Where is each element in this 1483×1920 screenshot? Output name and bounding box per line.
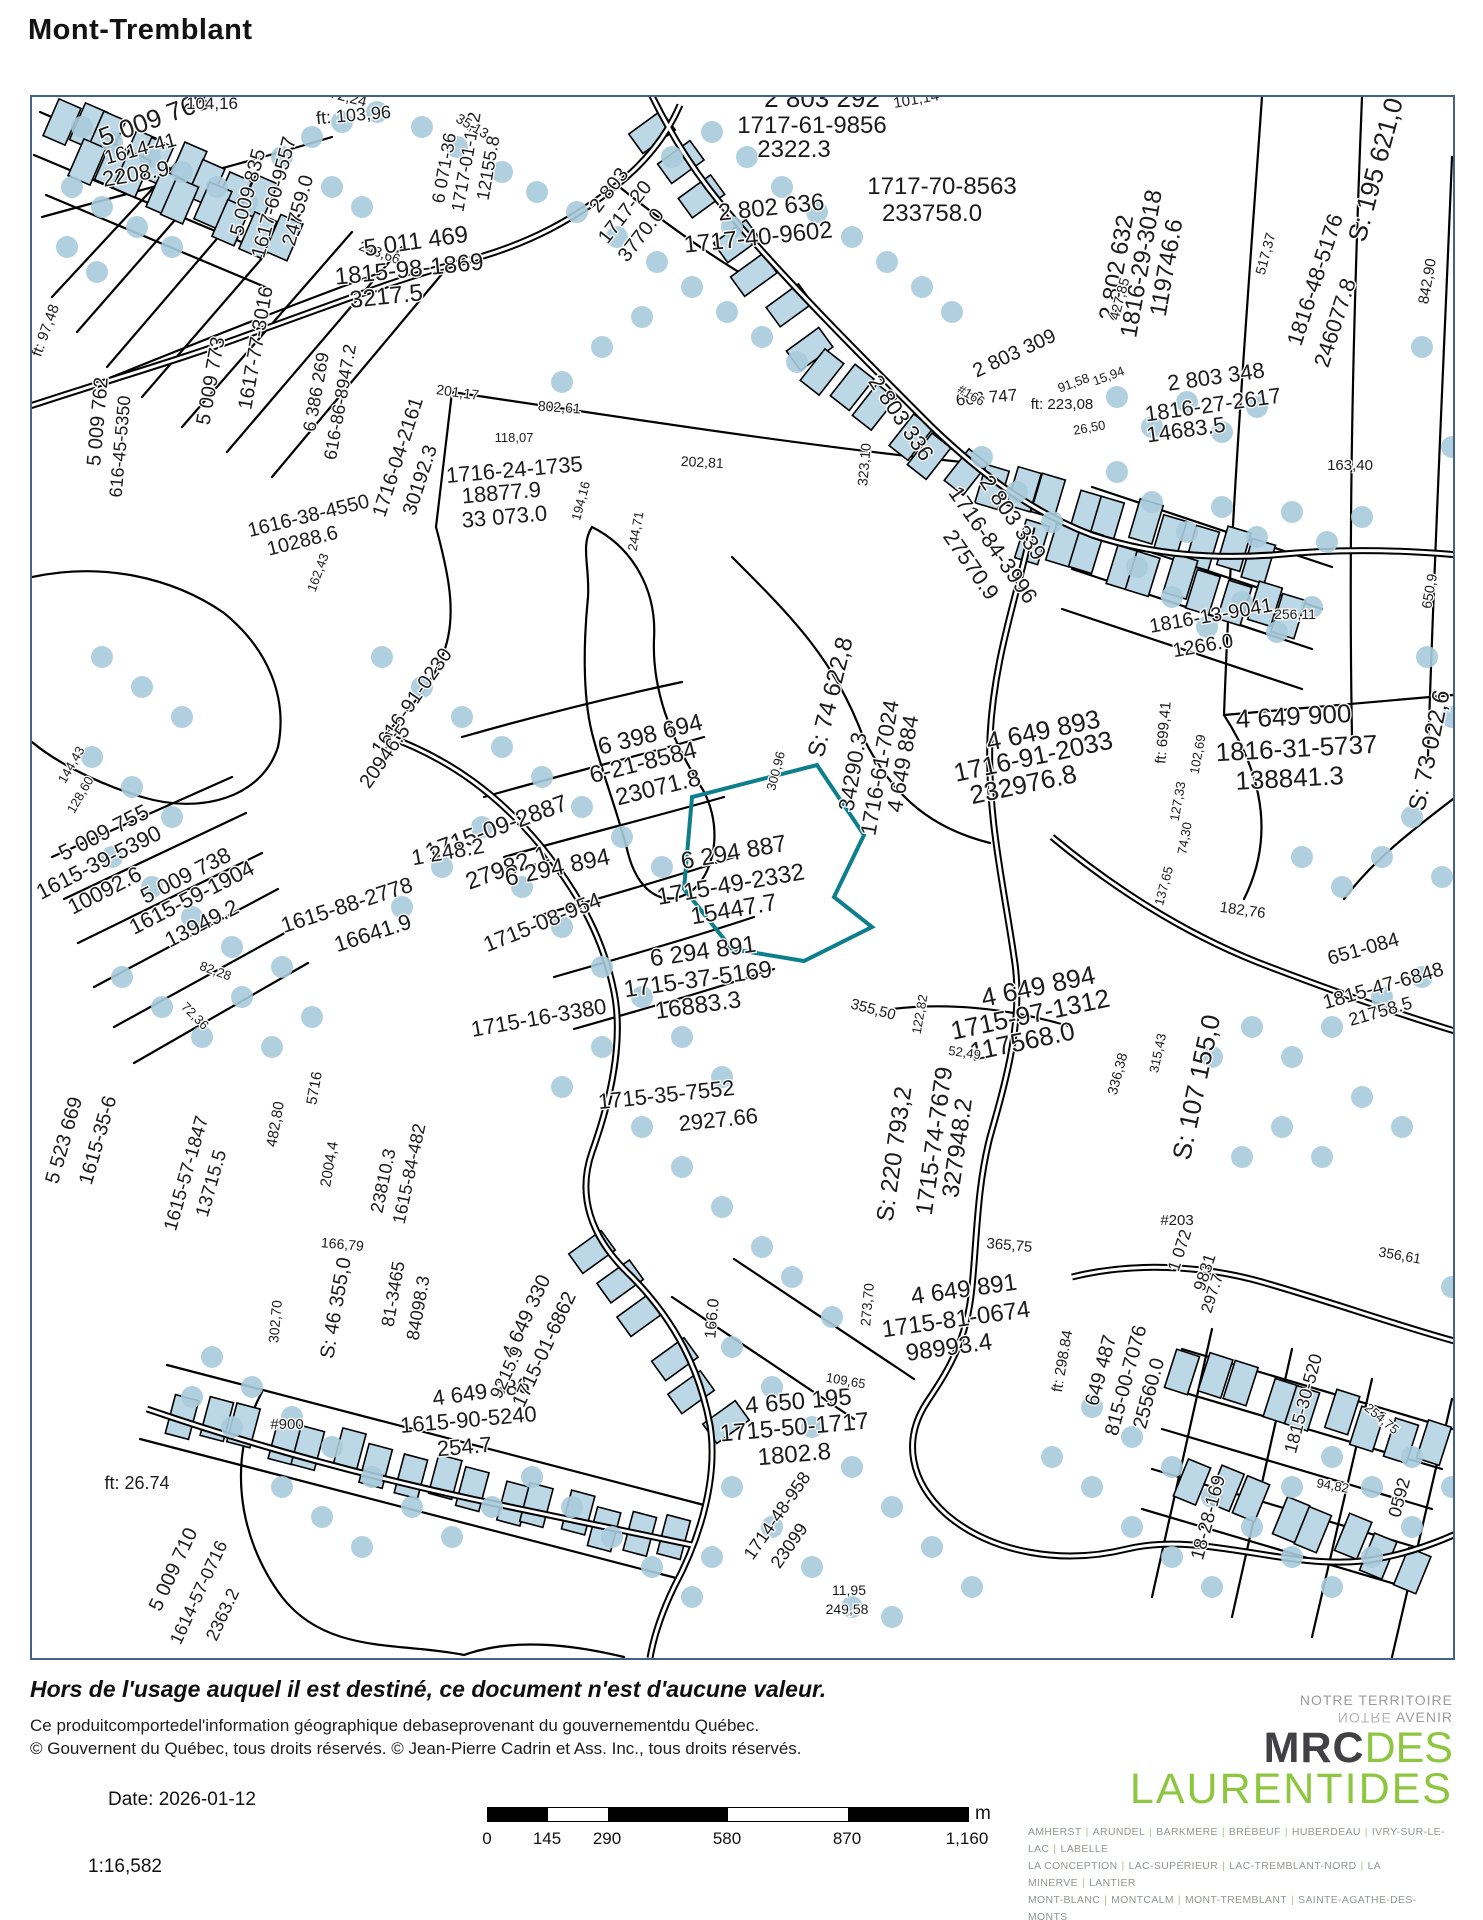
logo-tagline: NOTRE TERRITOIRE NOTRE AVENIR — [1028, 1692, 1453, 1726]
svg-text:S: 195 621,0: S: 195 621,0 — [1342, 97, 1409, 245]
svg-text:ft: 699,41: ft: 699,41 — [1152, 701, 1174, 765]
svg-text:2322.3: 2322.3 — [757, 136, 830, 163]
svg-text:249,58: 249,58 — [826, 1601, 869, 1617]
svg-text:138841.3: 138841.3 — [1235, 760, 1345, 796]
svg-text:ft: 97,48: ft: 97,48 — [32, 302, 63, 359]
svg-text:#900: #900 — [270, 1416, 303, 1433]
svg-text:802,61: 802,61 — [537, 398, 581, 417]
svg-text:1717-70-8563: 1717-70-8563 — [867, 173, 1016, 200]
svg-text:233758.0: 233758.0 — [882, 200, 982, 227]
svg-text:163,40: 163,40 — [1327, 457, 1373, 474]
credit-line-1: Ce produitcomportedel'information géogra… — [30, 1716, 759, 1736]
scale-ratio-label: 1:16,582 — [88, 1856, 162, 1878]
svg-text:2 803 309: 2 803 309 — [969, 325, 1059, 383]
svg-text:202,81: 202,81 — [680, 453, 724, 471]
svg-text:315,43: 315,43 — [1146, 1032, 1169, 1074]
scalebar-unit: m — [975, 1803, 991, 1825]
svg-text:201,17: 201,17 — [435, 381, 480, 403]
svg-text:365,75: 365,75 — [986, 1235, 1033, 1256]
scalebar-tick: 580 — [713, 1829, 741, 1849]
svg-text:5716: 5716 — [303, 1070, 326, 1106]
svg-text:1615-84-482: 1615-84-482 — [389, 1122, 430, 1226]
scalebar-bar — [487, 1807, 969, 1822]
svg-text:137,65: 137,65 — [1151, 865, 1176, 907]
svg-text:482,80: 482,80 — [263, 1100, 288, 1148]
svg-text:118,07: 118,07 — [495, 430, 534, 445]
svg-text:91,58: 91,58 — [1056, 370, 1092, 395]
svg-text:254.7: 254.7 — [436, 1432, 493, 1462]
municipalities-list: AMHERST|ARUNDEL|BARKMERE|BRÉBEUF|HUBERDE… — [1028, 1824, 1453, 1920]
svg-text:1802.8: 1802.8 — [757, 1438, 832, 1471]
svg-text:650,9: 650,9 — [1418, 572, 1440, 609]
svg-text:ft: 223,08: ft: 223,08 — [1031, 396, 1094, 413]
svg-text:651-084: 651-084 — [1325, 929, 1402, 970]
svg-text:0592: 0592 — [1384, 1476, 1414, 1520]
svg-text:842,90: 842,90 — [1415, 257, 1440, 305]
svg-text:323,10: 323,10 — [854, 442, 874, 486]
svg-text:102,69: 102,69 — [1187, 733, 1209, 775]
scalebar-tick: 0 — [482, 1829, 491, 1849]
svg-text:166.0: 166.0 — [702, 1298, 722, 1339]
svg-text:11,95: 11,95 — [832, 1582, 866, 1598]
svg-text:ft: 298.84: ft: 298.84 — [1049, 1329, 1077, 1394]
svg-text:162,43: 162,43 — [304, 551, 332, 593]
scalebar-tick: 145 — [533, 1829, 561, 1849]
svg-text:4 649 900: 4 649 900 — [1235, 698, 1352, 734]
date-label: Date: 2026-01-12 — [108, 1789, 256, 1811]
scalebar: 01452905808701,160 m — [487, 1803, 987, 1863]
svg-text:1816-31-5737: 1816-31-5737 — [1215, 729, 1378, 767]
svg-text:94,82: 94,82 — [1315, 1475, 1350, 1495]
svg-text:2927.66: 2927.66 — [677, 1103, 759, 1136]
svg-text:1715-16-3380: 1715-16-3380 — [469, 993, 608, 1041]
svg-text:15,94: 15,94 — [1091, 363, 1127, 388]
svg-text:244,71: 244,71 — [625, 510, 647, 552]
svg-text:256,11: 256,11 — [1274, 606, 1316, 622]
svg-text:S: 220 793,2: S: 220 793,2 — [872, 1085, 918, 1224]
scalebar-tick: 290 — [593, 1829, 621, 1849]
svg-text:273,70: 273,70 — [857, 1282, 877, 1326]
svg-text:26,50: 26,50 — [1072, 417, 1107, 437]
svg-text:1615-90-5240: 1615-90-5240 — [399, 1401, 538, 1438]
mrc-laurentides-logo: NOTRE TERRITOIRE NOTRE AVENIR MRCDES LAU… — [1028, 1692, 1453, 1902]
map-frame: 5 009 768104,161614-412208.95 009 835161… — [30, 95, 1455, 1660]
svg-text:517,37: 517,37 — [1252, 231, 1279, 277]
logo-tagline-flipped-word: NOTRE — [1338, 1709, 1392, 1726]
svg-text:355,50: 355,50 — [849, 996, 898, 1024]
svg-text:182,76: 182,76 — [1219, 899, 1267, 922]
svg-text:ft: 26.74: ft: 26.74 — [104, 1473, 169, 1493]
svg-text:74,30: 74,30 — [1174, 821, 1194, 856]
svg-text:127,33: 127,33 — [1167, 780, 1189, 822]
svg-text:84098.3: 84098.3 — [403, 1274, 434, 1342]
svg-text:52,49: 52,49 — [947, 1043, 981, 1062]
credit-line-2: © Gouvernent du Québec, tous droits rése… — [30, 1739, 802, 1759]
svg-text:S: 107 155,0: S: 107 155,0 — [1166, 1012, 1226, 1162]
svg-text:302,70: 302,70 — [265, 1299, 285, 1343]
svg-text:2 803 292: 2 803 292 — [764, 97, 880, 113]
svg-text:194,16: 194,16 — [568, 480, 593, 522]
svg-text:104,16: 104,16 — [186, 97, 238, 113]
svg-text:2004,4: 2004,4 — [317, 1140, 342, 1188]
svg-text:1717-40-9602: 1717-40-9602 — [682, 216, 833, 258]
svg-text:82,28: 82,28 — [198, 958, 234, 983]
cadastral-map-canvas: 5 009 768104,161614-412208.95 009 835161… — [32, 97, 1453, 1658]
scalebar-tick: 870 — [833, 1829, 861, 1849]
svg-text:#203: #203 — [1160, 1212, 1193, 1229]
scalebar-tick: 1,160 — [946, 1829, 989, 1849]
svg-text:356,61: 356,61 — [1377, 1243, 1422, 1266]
svg-text:101,14: 101,14 — [892, 97, 940, 112]
svg-text:S: 46 355,0: S: 46 355,0 — [316, 1256, 355, 1361]
svg-text:1715-08-954: 1715-08-954 — [480, 887, 605, 957]
svg-text:81-3465: 81-3465 — [378, 1260, 409, 1329]
logo-wordmark: MRCDES LAURENTIDES — [1028, 1728, 1453, 1810]
page-title: Mont-Tremblant — [28, 14, 253, 47]
svg-text:1717-61-9856: 1717-61-9856 — [737, 112, 886, 139]
svg-text:1617-77-3016: 1617-77-3016 — [234, 285, 277, 411]
svg-text:336,38: 336,38 — [1104, 1051, 1131, 1097]
svg-text:S: 73 022,6: S: 73 022,6 — [1404, 688, 1453, 814]
disclaimer-text: Hors de l'usage auquel il est destiné, c… — [30, 1676, 826, 1703]
svg-text:300,96: 300,96 — [763, 750, 788, 792]
svg-text:122,82: 122,82 — [909, 993, 931, 1035]
svg-text:166,79: 166,79 — [320, 1234, 364, 1254]
